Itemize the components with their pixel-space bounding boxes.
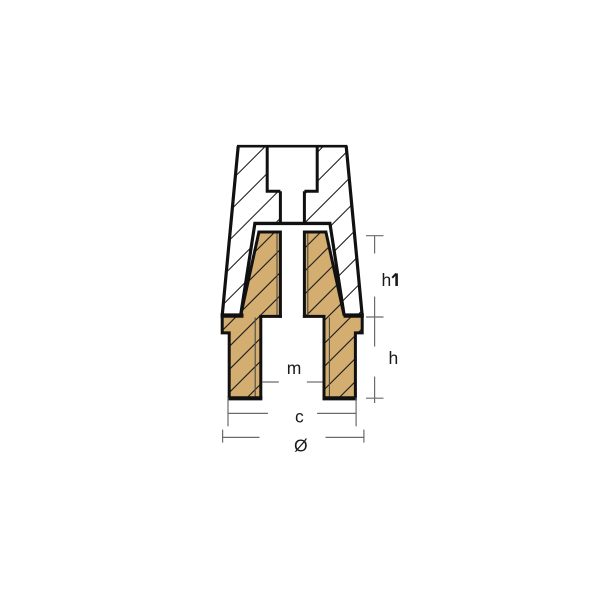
svg-text:m: m	[287, 358, 302, 378]
svg-text:h: h	[382, 270, 392, 290]
svg-text:h: h	[389, 348, 399, 368]
svg-text:c: c	[295, 407, 304, 427]
svg-text:Ø: Ø	[294, 436, 308, 456]
